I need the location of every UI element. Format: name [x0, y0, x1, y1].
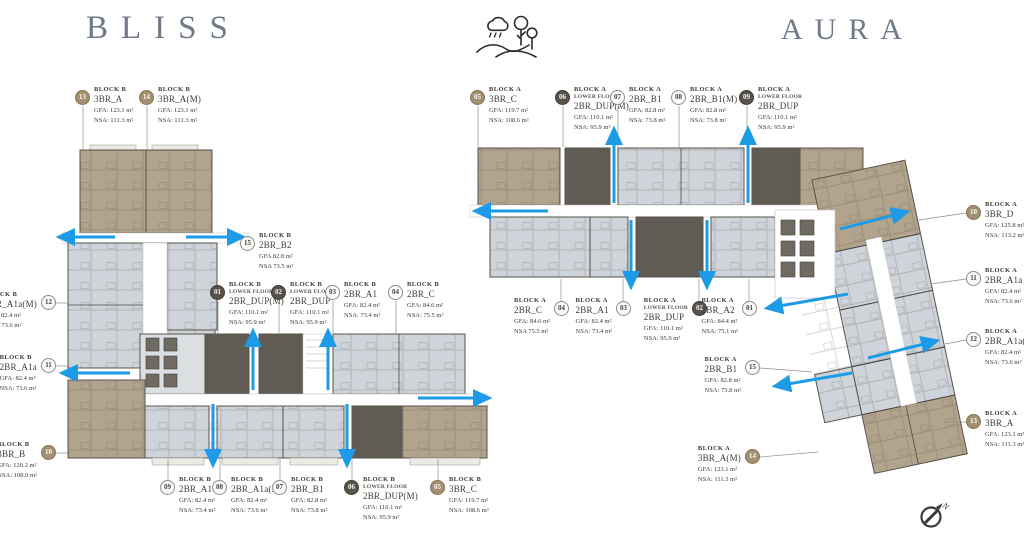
leader-line — [931, 279, 966, 284]
leader-line — [945, 340, 966, 344]
unit-2br-dup — [636, 217, 703, 277]
balcony — [222, 458, 278, 465]
unit-2br-dup-m — [565, 148, 610, 205]
compass-north-icon: N — [922, 500, 953, 527]
corridor — [143, 243, 167, 334]
corridor — [145, 394, 488, 406]
balcony — [410, 458, 480, 465]
balcony — [290, 458, 338, 465]
floorplan-page: BLISS AURA — [0, 0, 1024, 534]
unit-2br-dup — [752, 148, 800, 205]
compass-n-label: N — [940, 500, 952, 513]
leader-line — [760, 368, 812, 372]
leader-line — [760, 452, 818, 457]
leader-line — [919, 213, 966, 220]
bliss-floorplan — [62, 145, 488, 465]
unit-2br-dup — [259, 334, 303, 394]
landscape-icon — [477, 17, 537, 58]
unit-2br-dup-m — [352, 406, 402, 458]
aura-floorplan — [470, 148, 967, 481]
balcony — [152, 458, 204, 465]
site-plan-canvas: N — [0, 0, 1024, 534]
unit-2br-dup-m — [205, 334, 249, 394]
